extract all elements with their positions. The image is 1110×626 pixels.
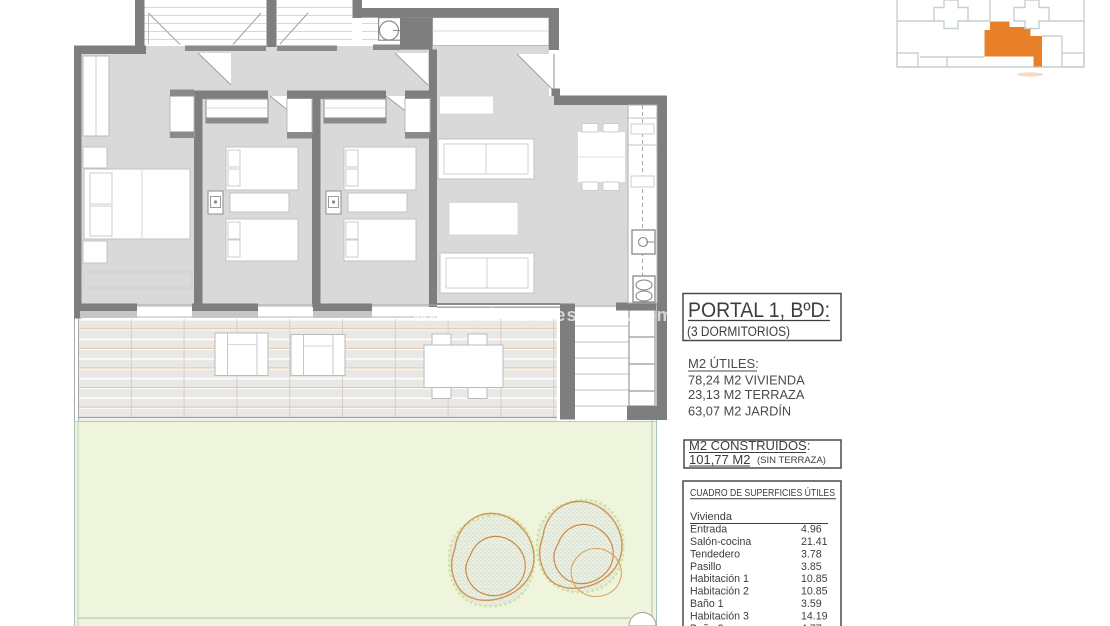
svg-text:63,07 M2 JARDÍN: 63,07 M2 JARDÍN [688,404,791,419]
svg-text:M2 CONSTRUIDOS:: M2 CONSTRUIDOS: [689,438,810,453]
svg-text:3.85: 3.85 [801,561,822,573]
svg-text:10.85: 10.85 [801,573,828,585]
svg-text:14.19: 14.19 [801,610,828,622]
svg-text:10.85: 10.85 [801,586,828,598]
svg-text:23,13 M2 TERRAZA: 23,13 M2 TERRAZA [688,387,805,402]
svg-text:PORTAL 1, BºD:: PORTAL 1, BºD: [688,299,830,322]
svg-text:3.59: 3.59 [801,598,822,610]
svg-text:(3 DORMITORIOS): (3 DORMITORIOS) [687,324,790,339]
svg-text:Entrada: Entrada [690,524,727,536]
svg-text:3.78: 3.78 [801,548,822,560]
svg-text:78,24 M2 VIVIENDA: 78,24 M2 VIVIENDA [688,373,805,388]
svg-text:21.41: 21.41 [801,536,828,548]
svg-text:Baño 1: Baño 1 [690,598,724,610]
svg-text:101,77 M2: 101,77 M2 [689,452,750,467]
svg-text:Vivienda: Vivienda [690,511,733,523]
svg-text:www.solmaresestates.com: www.solmaresestates.com [412,304,674,325]
svg-text:Pasillo: Pasillo [690,561,721,573]
svg-text:Tendedero: Tendedero [690,548,740,560]
svg-text:(SIN TERRAZA): (SIN TERRAZA) [757,455,826,466]
svg-text:Habitación 3: Habitación 3 [690,610,749,622]
svg-text:Salón-cocina: Salón-cocina [690,536,751,548]
svg-text:Habitación 1: Habitación 1 [690,573,749,585]
svg-text:Habitación 2: Habitación 2 [690,586,749,598]
svg-text:CUADRO DE SUPERFICIES ÚTILES: CUADRO DE SUPERFICIES ÚTILES [690,486,835,499]
svg-text:4.96: 4.96 [801,524,822,536]
svg-text:M2 ÚTILES:: M2 ÚTILES: [688,356,759,371]
